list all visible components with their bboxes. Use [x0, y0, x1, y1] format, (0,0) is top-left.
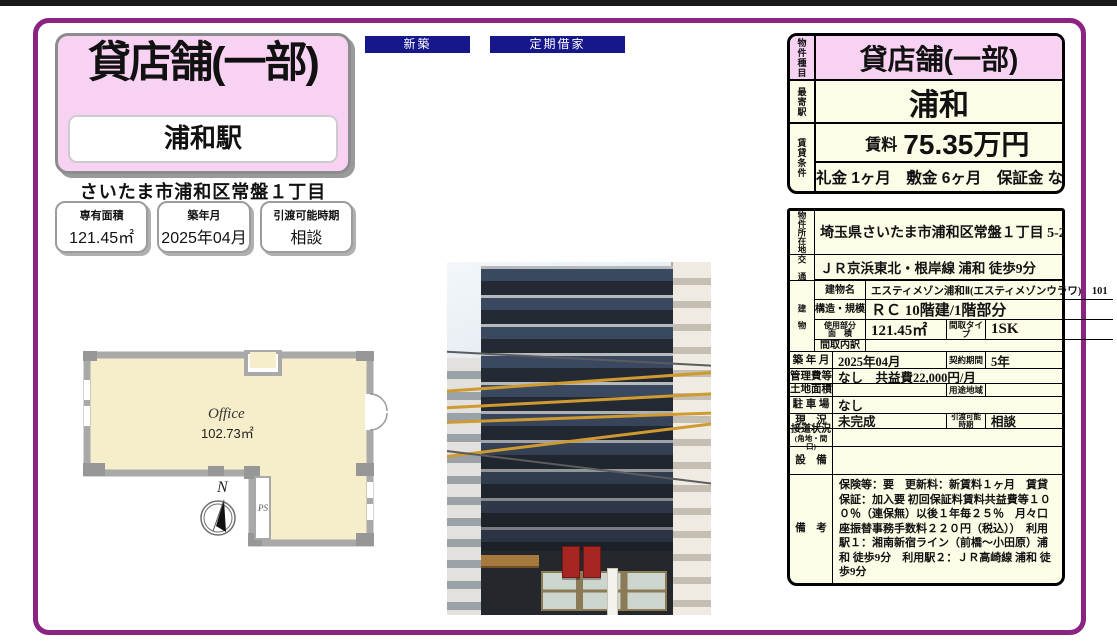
red-banner [562, 546, 580, 578]
badge-new-construction: 新築 [365, 36, 470, 53]
floor-plan-svg: PS Office 102.73㎡ N [58, 342, 390, 558]
building-label: 建 物 [790, 281, 815, 351]
status-value: 未完成 [833, 414, 946, 428]
built-label: 築 年 月 [790, 352, 833, 368]
stat-value: 121.45㎡ [59, 224, 144, 248]
summary-terms-label: 賃貸条件 [790, 124, 816, 191]
road-value [833, 429, 1062, 446]
row-equipment: 設 備 [790, 446, 1062, 474]
stat-value: 相談 [264, 224, 349, 248]
equipment-value [833, 447, 1062, 474]
row-remarks: 備 考 保険等：要 更新料：新賃料１ヶ月 賃貸保証：加入要 初回保証料賃料共益費… [790, 474, 1062, 583]
neighbor-building-left [447, 358, 481, 615]
summary-type-label: 物件種目 [790, 36, 816, 79]
mgmt-label: 管理費等 [790, 369, 833, 383]
road-label: 接道状況 (角地・間口) [790, 429, 833, 446]
summary-row-station: 最寄駅 浦和 [790, 79, 1062, 122]
stat-value: 2025年04月 [161, 224, 246, 248]
wood-canopy [481, 555, 539, 568]
deposit-terms-line: 礼金 1ヶ月 敷金 6ヶ月 保証金 なし [816, 163, 1065, 191]
station-name-box: 浦和駅 [68, 115, 338, 163]
hero-box: 貸店舗(一部) 浦和駅 [55, 33, 351, 174]
structure-value: ＲＣ 10階建/1階部分 [866, 300, 1113, 319]
row-built: 築 年 月 2025年04月 契約期間 5年 [790, 351, 1062, 368]
layout-detail-label: 間取内訳 [815, 340, 866, 351]
handover-label: 引渡可能 時期 [946, 414, 986, 428]
badge-fixed-term-lease: 定期借家 [490, 36, 625, 53]
summary-type-value: 貸店舗(一部) [816, 36, 1062, 79]
zoning-value [986, 384, 1062, 396]
top-black-bar [0, 0, 1117, 6]
equipment-label: 設 備 [790, 447, 833, 474]
layout-type-label: 間取タイプ [946, 320, 986, 339]
stat-handover: 引渡可能時期 相談 [260, 201, 353, 253]
row-parking: 駐 車 場 なし [790, 396, 1062, 413]
land-value [833, 384, 946, 396]
land-label: 土地面積 [790, 384, 833, 396]
floorplan-ps-label: PS [257, 503, 268, 513]
row-land-area: 土地面積 用途地域 [790, 383, 1062, 396]
summary-row-type: 物件種目 貸店舗(一部) [790, 36, 1062, 79]
building-name-value: エスティメゾン浦和Ⅱ(エスティメゾンウラワ) 101 [866, 281, 1113, 299]
floor-plan-walls [87, 355, 370, 543]
contract-label: 契約期間 [946, 352, 986, 368]
row-location: 物件所在地 埼玉県さいたま市浦和区常盤１丁目 5-2 [790, 211, 1062, 254]
floor-area-value: 121.45㎡ [866, 320, 946, 339]
main-building-facade [481, 266, 673, 551]
parking-value: なし [833, 397, 1062, 413]
property-flyer: 貸店舗(一部) 浦和駅 さいたま市浦和区常盤１丁目 専有面積 121.45㎡ 築… [0, 0, 1117, 641]
rent-label: 賃料 [865, 131, 897, 155]
white-sign [607, 568, 618, 615]
rent-value: 75.35万円 [903, 123, 1029, 163]
floorplan-room-label: Office [208, 406, 245, 422]
location-label: 物件所在地 [790, 211, 815, 254]
row-building: 建 物 建物名 エスティメゾン浦和Ⅱ(エスティメゾンウラワ) 101 構造・規模… [790, 280, 1062, 351]
details-table: 物件所在地 埼玉県さいたま市浦和区常盤１丁目 5-2 交 通 ＪＲ京浜東北・根岸… [787, 208, 1065, 586]
property-type-title: 貸店舗(一部) [58, 38, 348, 90]
handover-value: 相談 [986, 414, 1062, 428]
row-access: 交 通 ＪＲ京浜東北・根岸線 浦和 徒歩9分 [790, 254, 1062, 281]
parking-label: 駐 車 場 [790, 397, 833, 413]
stat-built-date: 築年月 2025年04月 [157, 201, 250, 253]
red-banner [583, 546, 601, 578]
summary-station-label: 最寄駅 [790, 81, 816, 122]
mgmt-value: なし 共益費22,000円/月 [833, 369, 1062, 383]
stat-label: 引渡可能時期 [264, 207, 349, 223]
building-name-label: 建物名 [815, 281, 866, 299]
contract-value: 5年 [986, 352, 1062, 368]
location-value: 埼玉県さいたま市浦和区常盤１丁目 5-2 [815, 211, 1062, 254]
built-value: 2025年04月 [833, 352, 946, 368]
building-photo [447, 262, 711, 615]
floorplan-area-label: 102.73㎡ [201, 426, 254, 441]
access-value: ＪＲ京浜東北・根岸線 浦和 徒歩9分 [815, 255, 1062, 279]
summary-table: 物件種目 貸店舗(一部) 最寄駅 浦和 賃貸条件 賃料 75.35万円 礼金 1… [787, 33, 1065, 194]
layout-type-value: 1SK [986, 320, 1113, 339]
remarks-label: 備 考 [790, 475, 833, 583]
remarks-value: 保険等：要 更新料：新賃料１ヶ月 賃貸保証：加入要 初回保証料賃料共益費等１００… [833, 475, 1062, 583]
access-label: 交 通 [790, 255, 815, 281]
structure-label: 構造・規模 [815, 300, 866, 319]
stat-label: 専有面積 [59, 207, 144, 223]
summary-station-value: 浦和 [816, 81, 1062, 122]
stat-label: 築年月 [161, 207, 246, 223]
stat-boxes: 専有面積 121.45㎡ 築年月 2025年04月 引渡可能時期 相談 [55, 201, 353, 253]
zoning-label: 用途地域 [946, 384, 986, 396]
layout-detail-value [866, 340, 1113, 351]
row-management-fee: 管理費等 なし 共益費22,000円/月 [790, 368, 1062, 383]
summary-row-terms: 賃貸条件 賃料 75.35万円 礼金 1ヶ月 敷金 6ヶ月 保証金 なし [790, 122, 1062, 191]
neighbor-building-right [671, 262, 711, 615]
floor-plan-image: PS Office 102.73㎡ N [58, 342, 390, 558]
row-road-condition: 接道状況 (角地・間口) [790, 428, 1062, 446]
compass-north-label: N [216, 479, 229, 496]
floor-area-label: 使用部分 面 積 [815, 320, 866, 339]
stat-exclusive-area: 専有面積 121.45㎡ [55, 201, 148, 253]
